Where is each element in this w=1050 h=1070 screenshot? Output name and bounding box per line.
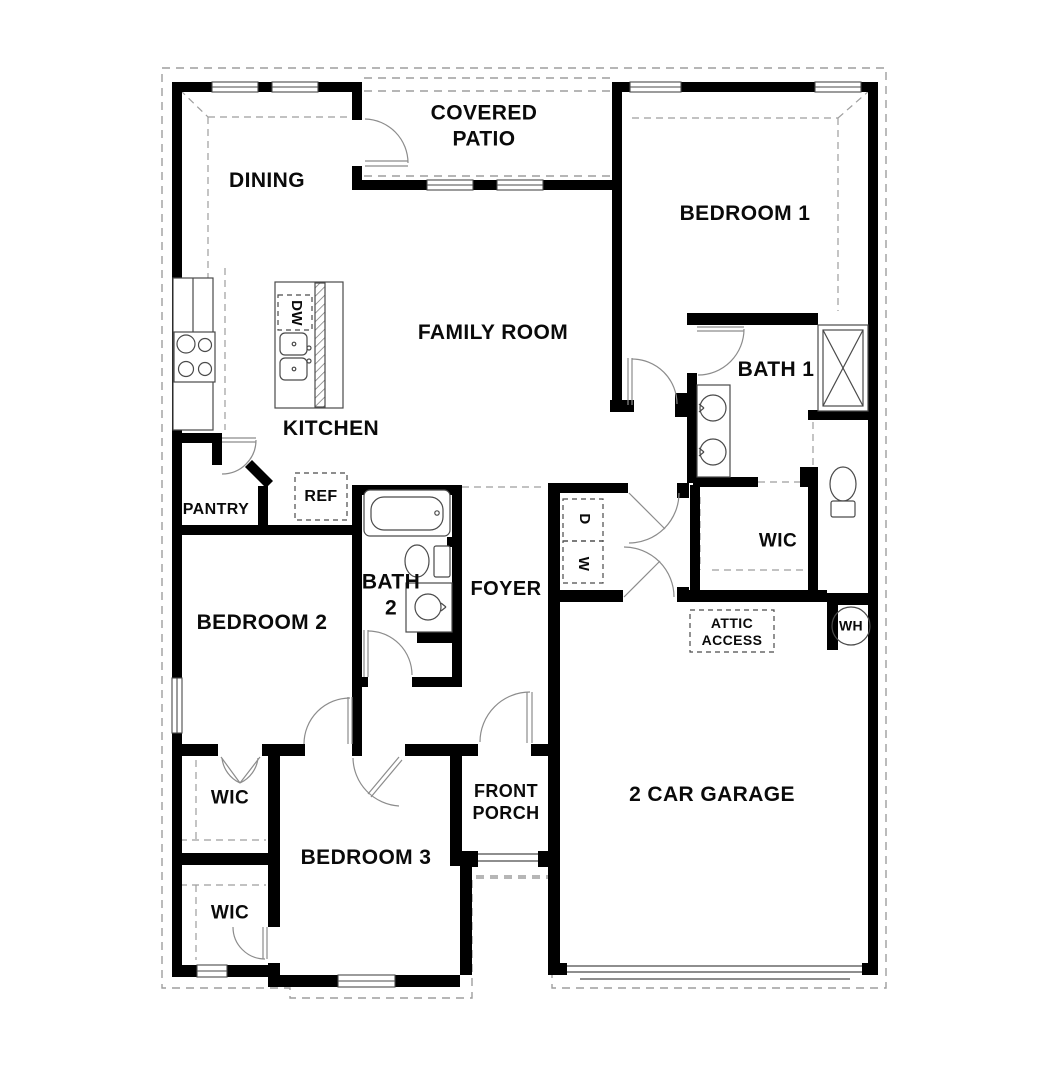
patio-door: [365, 119, 408, 166]
appliance-label-dw: DW: [287, 300, 305, 326]
laundry-door: [629, 493, 679, 543]
room-label-bath2: BATH 2: [362, 569, 420, 620]
room-label-bath1: BATH 1: [738, 357, 815, 383]
label-attic-access: ATTIC ACCESS: [702, 615, 763, 649]
kitchen-island: [275, 282, 343, 408]
room-label-covered-patio: COVERED PATIO: [431, 100, 538, 151]
floor-plan: DINING COVERED PATIO BEDROOM 1 FAMILY RO…: [0, 0, 1050, 1070]
room-label-wic-bedroom3: WIC: [211, 901, 249, 924]
label-water-heater: WH: [839, 617, 863, 634]
hall-door: [628, 358, 677, 405]
bath2-tub: [364, 490, 450, 536]
room-label-wic-master: WIC: [759, 529, 797, 552]
wic-bedroom3-door: [233, 927, 267, 959]
stove: [174, 332, 215, 382]
bath2-door: [364, 630, 412, 677]
bath1-toilet: [830, 467, 856, 517]
bedroom3-door: [353, 757, 402, 806]
room-label-family-room: FAMILY ROOM: [418, 320, 568, 346]
floor-plan-drawing: [0, 0, 1050, 1070]
appliance-label-ref: REF: [304, 487, 337, 507]
room-label-bedroom3: BEDROOM 3: [301, 845, 432, 871]
room-label-dining: DINING: [229, 168, 305, 194]
room-label-front-porch: FRONT PORCH: [472, 781, 539, 825]
front-door: [480, 692, 532, 743]
bath1-vanity: [697, 385, 730, 477]
room-label-bedroom2: BEDROOM 2: [197, 610, 328, 636]
appliance-label-dryer: D: [575, 513, 593, 524]
bedroom2-door: [304, 697, 352, 744]
bath1-shower: [818, 325, 868, 411]
porch-edge: [478, 854, 538, 861]
room-label-wic-hall: WIC: [211, 786, 249, 809]
room-label-foyer: FOYER: [471, 577, 542, 601]
room-label-pantry: PANTRY: [183, 500, 249, 520]
garage-door: [567, 966, 862, 979]
appliance-label-washer: W: [574, 557, 592, 572]
door-swings: [221, 119, 744, 959]
garage-entry-door: [624, 547, 674, 597]
wic-hall-doors: [221, 757, 260, 783]
room-label-kitchen: KITCHEN: [283, 416, 379, 442]
room-label-bedroom1: BEDROOM 1: [680, 201, 811, 227]
room-label-garage: 2 CAR GARAGE: [629, 782, 795, 808]
